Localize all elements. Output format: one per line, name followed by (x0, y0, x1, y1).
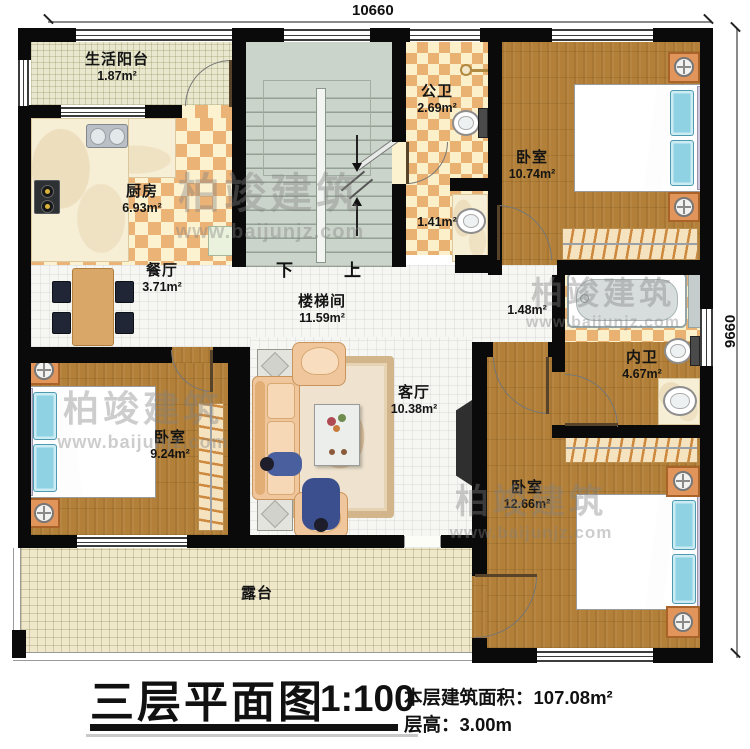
pillow (33, 392, 57, 440)
floor-area-label: 本层建筑面积： (404, 687, 534, 708)
room-label-inner-bath: 内卫 4.67m² (582, 350, 702, 381)
wall-segment (552, 275, 565, 372)
dimension-tick (703, 14, 714, 25)
room-label-washroom: 1.41m² (397, 215, 477, 229)
wall-segment (187, 535, 404, 548)
room-label-public-bath: 公卫 2.69m² (397, 84, 477, 115)
pillow (33, 444, 57, 492)
wardrobe (198, 403, 224, 531)
dining-chair (52, 312, 71, 334)
wall-segment (653, 648, 713, 663)
sofa (252, 376, 300, 500)
wall-segment (145, 105, 182, 118)
floor-height-value: 3.00m (460, 714, 512, 735)
nightstand (668, 192, 700, 222)
door-leaf (565, 423, 618, 426)
pillow (672, 554, 696, 604)
wall-segment (548, 342, 565, 357)
person-figure (266, 452, 302, 476)
wall-segment (25, 347, 172, 363)
wall-post (12, 630, 26, 658)
window (537, 651, 653, 662)
nightstand (28, 498, 60, 528)
plan-title: 三层平面图 (90, 666, 325, 730)
stair-arrow-down-icon (352, 163, 362, 172)
title-underline-shadow (86, 734, 418, 737)
stair-up-label: 上 (344, 256, 361, 281)
room-label-terrace: 露台 (197, 586, 317, 603)
window (61, 107, 145, 117)
nightstand (666, 466, 700, 497)
washbasin-icon (663, 386, 697, 416)
window (77, 537, 187, 547)
person-figure (302, 478, 340, 530)
room-label-bedroom-bottom-right: 卧室 12.66m² (467, 480, 587, 511)
kitchen-sink (86, 124, 128, 148)
door-leaf (210, 350, 213, 392)
public-bath-door-floor (392, 142, 406, 184)
floor-height-row: 层高：3.00m (404, 711, 512, 737)
stove-icon (34, 180, 60, 214)
room-label-hallway: 1.48m² (477, 303, 577, 317)
stair-arrow-up-icon (352, 197, 362, 206)
nightstand (666, 606, 700, 638)
nightstand (668, 52, 700, 83)
wall-segment (472, 638, 487, 650)
window (18, 60, 29, 106)
door-leaf (229, 60, 232, 107)
window (284, 29, 370, 41)
wall-segment (700, 366, 713, 663)
wardrobe (562, 228, 698, 260)
wall-segment (232, 28, 246, 267)
room-label-balcony: 生活阳台 1.87m² (57, 52, 177, 83)
window (76, 29, 232, 41)
bathtub (567, 272, 687, 328)
stair-arrow-line (356, 206, 358, 236)
dimension-tick (43, 14, 54, 25)
wall-segment (18, 106, 31, 548)
stair-stringer (316, 88, 326, 263)
side-table (257, 497, 293, 531)
wall-segment (28, 105, 61, 118)
door-leaf (475, 574, 537, 577)
room-label-bedroom-mid-left: 卧室 9.24m² (110, 430, 230, 461)
room-label-dining: 餐厅 3.71m² (102, 263, 222, 294)
floor-area-value: 107.08m² (534, 687, 613, 708)
stair-down-label: 下 (276, 256, 293, 281)
dimension-line-top (48, 21, 712, 23)
floor-height-label: 层高： (404, 714, 460, 735)
pillow (670, 90, 694, 136)
toilet-tank (478, 108, 488, 138)
pillow (672, 500, 696, 550)
stair-arrow-line (356, 135, 358, 165)
room-label-kitchen: 厨房 6.93m² (82, 184, 202, 215)
wall-segment (455, 255, 488, 273)
plan-scale: 1:100 (320, 678, 415, 720)
fridge (208, 226, 234, 256)
armchair (292, 342, 346, 386)
floor-area-row: 本层建筑面积：107.08m² (404, 684, 613, 710)
dimension-width-label: 10660 (352, 2, 394, 19)
dining-chair (115, 312, 134, 334)
wall-segment (18, 535, 77, 548)
wall-segment (228, 347, 250, 548)
wall-segment (472, 548, 487, 576)
room-label-living: 客厅 10.38m² (354, 385, 474, 416)
title-underline (90, 724, 398, 731)
pillow (670, 140, 694, 186)
window (410, 29, 480, 41)
wall-segment (557, 260, 713, 275)
dimension-height-label: 9660 (722, 315, 739, 348)
room-label-stairwell: 楼梯间 11.59m² (262, 294, 382, 325)
wall-segment (472, 342, 487, 548)
terrace-threshold (404, 536, 441, 547)
terrace-railing (13, 652, 474, 661)
wall-segment (18, 28, 31, 60)
window (552, 29, 653, 41)
door-leaf (497, 205, 500, 260)
wall-segment (472, 648, 537, 663)
room-label-bedroom-top-right: 卧室 10.74m² (472, 150, 592, 181)
kitchen-door-floor (182, 105, 232, 118)
towel-ring-icon (460, 64, 472, 76)
door-leaf (546, 357, 549, 414)
door-leaf (406, 142, 409, 184)
dining-chair (52, 281, 71, 303)
floor-plan-page: 生活阳台 1.87m² 厨房 6.93m² 公卫 2.69m² 1.41m² 卧… (0, 0, 750, 749)
